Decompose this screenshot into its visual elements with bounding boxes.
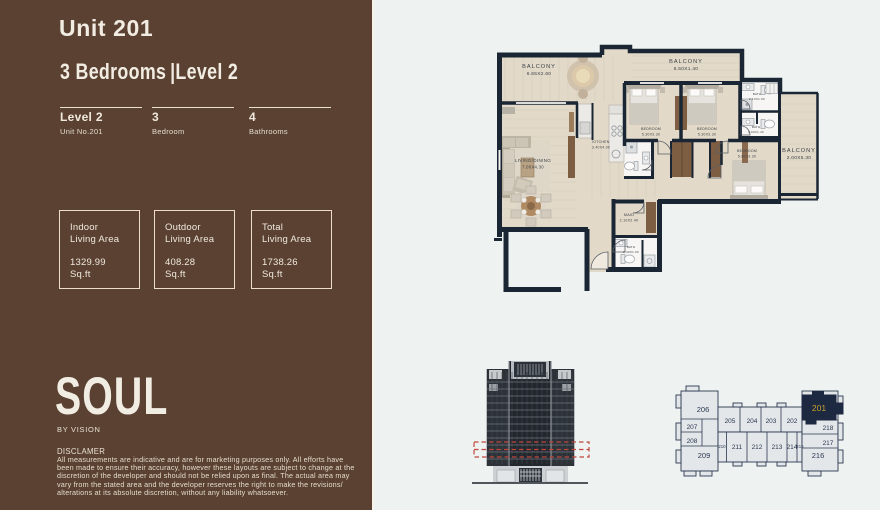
svg-text:210: 210 [718,444,726,449]
svg-text:BALCONY: BALCONY [522,64,556,70]
svg-text:6.50X1.40: 6.50X1.40 [674,66,699,72]
svg-text:2.10X2.40: 2.10X2.40 [620,219,639,223]
svg-text:BEDROOM: BEDROOM [641,127,661,131]
svg-text:209: 209 [698,451,711,460]
svg-text:1.90X1.40: 1.90X1.40 [748,130,764,134]
svg-text:BEDROOM: BEDROOM [697,127,717,131]
svg-text:213: 213 [772,444,783,451]
svg-text:203: 203 [766,418,777,425]
svg-text:2.00X5.30: 2.00X5.30 [787,155,812,161]
svg-text:215: 215 [796,444,804,449]
svg-text:5.30X3.30: 5.30X3.30 [698,133,716,137]
svg-text:5.80X3.30: 5.80X3.30 [738,155,756,159]
svg-text:204: 204 [747,418,758,425]
svg-text:3.40X4.00: 3.40X4.00 [592,146,610,150]
svg-text:7.00X4.30: 7.00X4.30 [522,164,544,169]
svg-text:2.40X1.60: 2.40X1.60 [623,250,639,254]
svg-text:BEDROOM: BEDROOM [737,149,757,153]
svg-text:BATH: BATH [752,125,760,129]
svg-text:5.30X3.30: 5.30X3.30 [642,133,660,137]
svg-text:217: 217 [823,440,834,447]
svg-text:BATH: BATH [753,92,761,96]
svg-text:211: 211 [732,444,743,451]
svg-text:BATH: BATH [627,245,635,249]
svg-text:BALCONY: BALCONY [669,59,703,65]
svg-text:207: 207 [687,424,698,431]
svg-text:201: 201 [812,403,826,413]
svg-text:216: 216 [812,451,825,460]
svg-text:206: 206 [697,405,710,414]
svg-text:208: 208 [687,438,698,445]
svg-text:2.10X1.60: 2.10X1.60 [749,97,765,101]
svg-text:BALCONY: BALCONY [782,148,816,154]
svg-text:205: 205 [725,418,736,425]
svg-text:LIVING/DINING: LIVING/DINING [515,158,551,163]
svg-text:6.65X2.60: 6.65X2.60 [527,71,552,77]
svg-text:212: 212 [752,444,763,451]
svg-text:KITCHEN: KITCHEN [592,140,609,144]
svg-text:202: 202 [787,418,798,425]
svg-text:218: 218 [823,425,834,432]
svg-text:MAID: MAID [624,213,634,217]
